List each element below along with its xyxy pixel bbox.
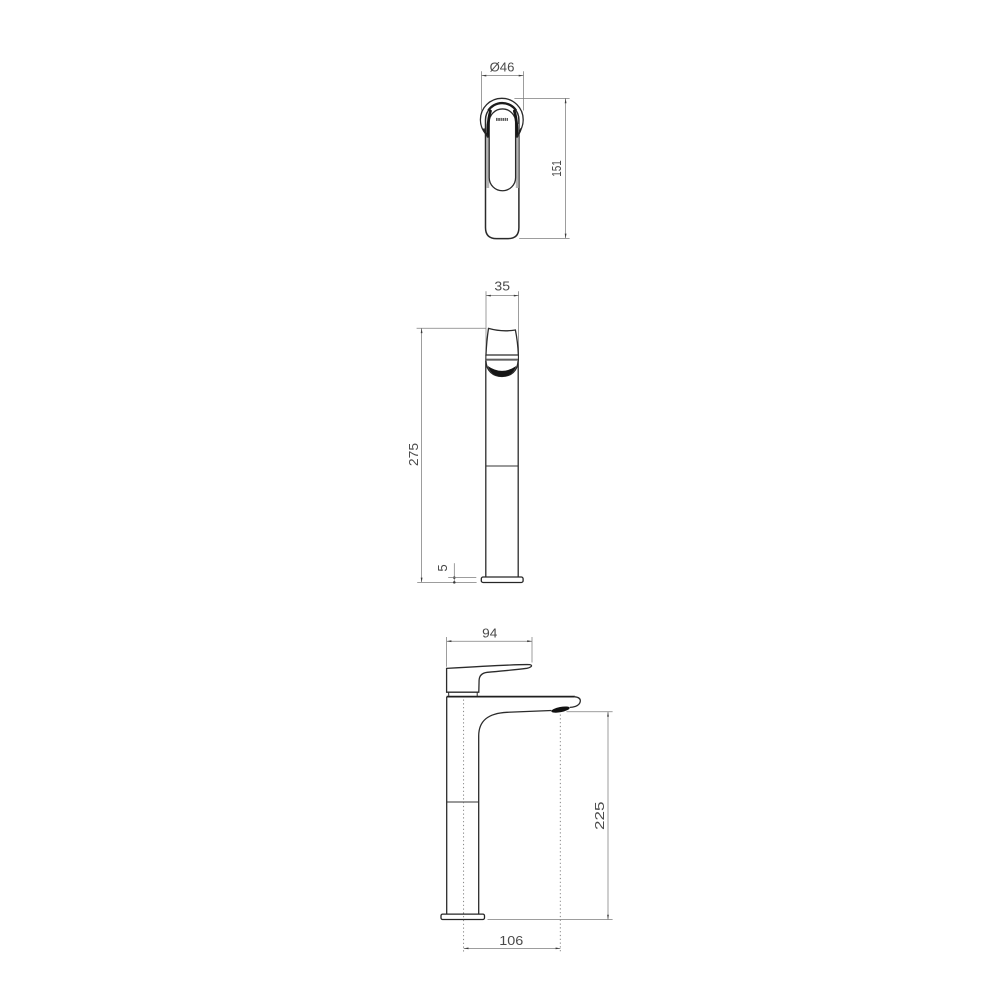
svg-text:35: 35 <box>494 279 510 294</box>
svg-text:5: 5 <box>435 564 450 571</box>
svg-text:275: 275 <box>406 443 421 466</box>
svg-text:225: 225 <box>592 802 607 830</box>
svg-text:94: 94 <box>482 625 497 640</box>
svg-text:Ø46: Ø46 <box>490 60 515 75</box>
svg-text:106: 106 <box>499 933 523 948</box>
svg-text:151: 151 <box>549 160 564 177</box>
